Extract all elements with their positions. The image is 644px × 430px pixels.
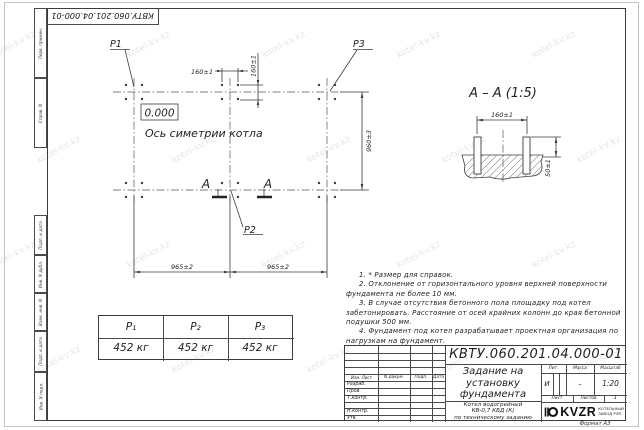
- scale-label: Масштаб: [594, 364, 627, 373]
- product-name: Котел водогрейный КВ-0,7 КБД (К) по техн…: [445, 401, 541, 423]
- mass-label: Масса: [566, 364, 594, 373]
- dim-960: 960±3: [365, 130, 373, 152]
- load-table-header-p3: P₃: [228, 316, 292, 338]
- row-label-utv: Утв.: [347, 415, 377, 422]
- title-block: Изм. Лист N докум. Подп. Дата Разраб. Пр…: [344, 345, 626, 421]
- sheets-label: Листов: [573, 395, 604, 402]
- note-4: 4. Фундамент под котел разрабатывает про…: [346, 327, 623, 346]
- row-label-prov: Пров.: [347, 388, 377, 395]
- point-label-p3: P3: [353, 39, 365, 50]
- note-2: 2. Отклонение от горизонтального уровня …: [346, 280, 623, 299]
- dim-965-left: 965±2: [171, 263, 193, 271]
- load-table: P₁ P₂ P₃ 452 кг 452 кг 452 кг: [98, 315, 293, 360]
- section-letter-left: A: [201, 177, 210, 191]
- section-view: [443, 137, 572, 188]
- row-label-razrab: Разраб.: [347, 381, 377, 388]
- col-header-izm-list: Изм. Лист: [345, 374, 378, 381]
- point-label-p2: P2: [244, 225, 256, 236]
- note-3: 3. В случае отсутствия бетонного пола пл…: [346, 299, 623, 327]
- lit-value: И: [541, 373, 553, 395]
- plan-centerlines: [113, 78, 503, 204]
- mass-value: –: [566, 373, 594, 395]
- lit-label: Лит.: [541, 364, 566, 373]
- row-label-nkontr: Н.контр.: [347, 408, 377, 415]
- col-header-n-dokum: N докум.: [378, 374, 410, 381]
- format-label: Формат А3: [565, 421, 625, 427]
- kvzr-coil-icon: [544, 405, 558, 419]
- logo-text: KVZR: [560, 405, 596, 419]
- load-table-value-p3: 452 кг: [228, 338, 292, 359]
- col-header-podp: Подп.: [410, 374, 432, 381]
- scale-value: 1:20: [594, 373, 627, 395]
- col-header-data: Дата: [432, 374, 445, 381]
- logo-subtitle: КОТЕЛЬНЫЙ ЗАВОД РЭП: [598, 407, 624, 416]
- load-table-value-p1: 452 кг: [99, 338, 163, 359]
- row-label-tkontr: Т.контр.: [347, 395, 377, 402]
- elevation-value: 0.000: [144, 108, 174, 120]
- dim-965-right: 965±2: [267, 263, 289, 271]
- load-table-header-p1: P₁: [99, 316, 163, 338]
- doc-number: КВТУ.060.201.04.000-01 Ф: [445, 346, 627, 364]
- boiler-axis-label: Ось симетрии котла: [145, 127, 263, 140]
- anchor-bolt-right: [523, 137, 530, 174]
- point-label-p1: P1: [110, 39, 122, 50]
- note-1: 1. * Размер для справок.: [346, 271, 623, 280]
- load-table-header-p2: P₂: [163, 316, 228, 338]
- section-dim-160: 160±1: [491, 111, 513, 119]
- sheets-value: 1: [604, 395, 627, 402]
- leader-lines: [110, 50, 373, 235]
- dim-160-vertical: 160±1: [250, 55, 258, 77]
- anchor-bolt-left: [474, 137, 481, 174]
- section-title: А – А (1:5): [468, 86, 537, 101]
- notes-block: 1. * Размер для справок. 2. Отклонение о…: [346, 271, 623, 346]
- drawing-title: Задание на установку фундамента: [445, 365, 541, 402]
- drawing-sheet: { "watermark": "kotel-kv.kz", "top_stamp…: [0, 0, 644, 430]
- section-dim-50: 50±1: [544, 159, 552, 177]
- anchor-bolt-points: [125, 84, 336, 198]
- load-table-value-p2: 452 кг: [163, 338, 228, 359]
- company-logo: KVZR КОТЕЛЬНЫЙ ЗАВОД РЭП: [541, 402, 627, 422]
- dim-160-horizontal: 160±1: [191, 68, 213, 76]
- section-letter-right: A: [263, 177, 272, 191]
- sheet-label: Лист: [541, 395, 573, 402]
